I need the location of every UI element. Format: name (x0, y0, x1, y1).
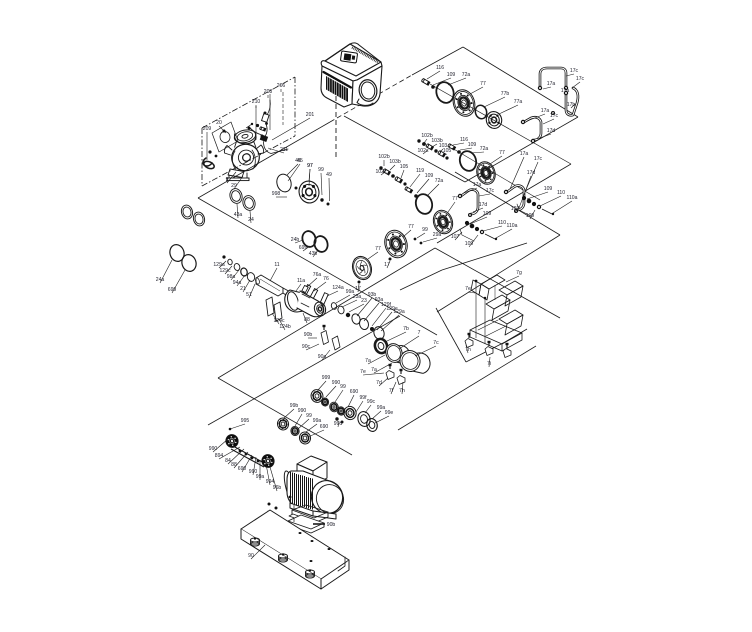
svg-text:124b: 124b (279, 324, 290, 330)
svg-text:201: 201 (306, 112, 315, 118)
svg-text:77: 77 (480, 81, 486, 87)
svg-text:72a: 72a (435, 178, 444, 184)
svg-text:17a: 17a (547, 81, 556, 87)
svg-text:102b: 102b (378, 154, 389, 160)
svg-text:109: 109 (425, 173, 434, 179)
svg-text:77: 77 (499, 150, 505, 156)
svg-text:77a: 77a (514, 99, 523, 105)
svg-text:99c: 99c (367, 399, 376, 405)
svg-text:116: 116 (436, 65, 444, 71)
svg-text:109: 109 (544, 186, 553, 192)
svg-text:17c: 17c (534, 156, 543, 162)
svg-text:17c: 17c (550, 113, 559, 119)
svg-text:17c: 17c (576, 76, 585, 82)
svg-text:7e: 7e (360, 369, 366, 375)
svg-text:90b: 90b (327, 522, 336, 528)
svg-text:72a: 72a (480, 146, 489, 152)
svg-text:49: 49 (326, 172, 332, 178)
svg-text:7b: 7b (403, 326, 409, 332)
svg-text:97: 97 (307, 163, 313, 169)
svg-text:23a: 23a (353, 294, 362, 300)
svg-text:990: 990 (332, 380, 341, 386)
svg-text:90: 90 (248, 553, 254, 559)
svg-text:208: 208 (264, 89, 273, 95)
svg-text:20: 20 (216, 120, 222, 126)
svg-text:17c: 17c (486, 188, 495, 194)
svg-text:105: 105 (443, 148, 452, 154)
svg-text:7g: 7g (516, 270, 522, 276)
svg-text:99: 99 (422, 227, 428, 233)
svg-text:7d: 7d (376, 380, 382, 386)
svg-text:99: 99 (306, 413, 312, 419)
svg-text:102c: 102c (417, 148, 428, 154)
svg-text:7e: 7e (465, 286, 471, 292)
svg-text:109: 109 (468, 142, 477, 148)
svg-text:76: 76 (323, 276, 329, 282)
svg-text:110a: 110a (507, 223, 518, 229)
svg-text:690: 690 (350, 389, 359, 395)
svg-text:206: 206 (277, 83, 286, 89)
svg-text:110: 110 (498, 220, 506, 226)
svg-text:102c: 102c (375, 169, 386, 175)
svg-text:9: 9 (226, 177, 229, 183)
svg-text:107: 107 (511, 206, 520, 212)
svg-text:99: 99 (318, 167, 324, 173)
svg-text:699: 699 (299, 245, 308, 251)
svg-text:76a: 76a (313, 272, 322, 278)
svg-text:96b: 96b (273, 485, 282, 491)
svg-text:690: 690 (320, 424, 329, 430)
svg-text:124a: 124a (332, 285, 343, 291)
svg-text:894: 894 (215, 453, 224, 459)
svg-text:105: 105 (400, 164, 409, 170)
svg-text:21: 21 (240, 286, 246, 292)
svg-text:209: 209 (203, 126, 212, 132)
svg-text:84: 84 (225, 458, 231, 464)
svg-text:43b: 43b (309, 251, 318, 257)
svg-text:17a: 17a (541, 108, 550, 114)
svg-text:109: 109 (483, 211, 492, 217)
svg-text:7c: 7c (433, 340, 439, 346)
svg-text:7: 7 (418, 330, 421, 336)
svg-text:77: 77 (408, 224, 414, 230)
svg-text:119: 119 (416, 168, 424, 174)
svg-text:109: 109 (447, 72, 456, 78)
svg-text:17c: 17c (570, 68, 579, 74)
svg-text:23: 23 (361, 298, 367, 304)
svg-text:11a: 11a (297, 278, 305, 284)
svg-text:109: 109 (465, 241, 474, 247)
svg-text:999: 999 (322, 375, 331, 381)
svg-text:77b: 77b (501, 91, 510, 97)
svg-text:77: 77 (375, 246, 381, 252)
svg-text:995: 995 (241, 418, 250, 424)
svg-text:90c: 90c (302, 344, 311, 350)
svg-text:110: 110 (557, 190, 565, 196)
svg-text:17d: 17d (479, 202, 488, 208)
svg-text:90a: 90a (318, 354, 327, 360)
svg-text:99e: 99e (385, 410, 394, 416)
svg-text:17a: 17a (561, 88, 570, 94)
svg-text:110a: 110a (567, 195, 578, 201)
svg-text:11: 11 (274, 262, 279, 268)
svg-text:45: 45 (295, 158, 301, 164)
svg-text:17d: 17d (527, 170, 536, 176)
svg-text:107: 107 (451, 234, 460, 240)
svg-text:90b: 90b (304, 332, 313, 338)
svg-text:210: 210 (252, 99, 261, 105)
svg-text:88: 88 (231, 462, 237, 468)
svg-text:24a: 24a (156, 277, 165, 283)
svg-text:17d: 17d (547, 128, 556, 134)
svg-text:72a: 72a (462, 72, 471, 78)
svg-text:129a: 129a (393, 309, 404, 315)
svg-text:99: 99 (340, 384, 346, 390)
svg-text:29a: 29a (433, 232, 442, 238)
svg-text:77: 77 (452, 196, 458, 202)
svg-text:17a: 17a (520, 151, 529, 157)
svg-text:990: 990 (298, 408, 307, 414)
svg-text:17a: 17a (473, 182, 482, 188)
svg-text:998: 998 (272, 191, 281, 197)
